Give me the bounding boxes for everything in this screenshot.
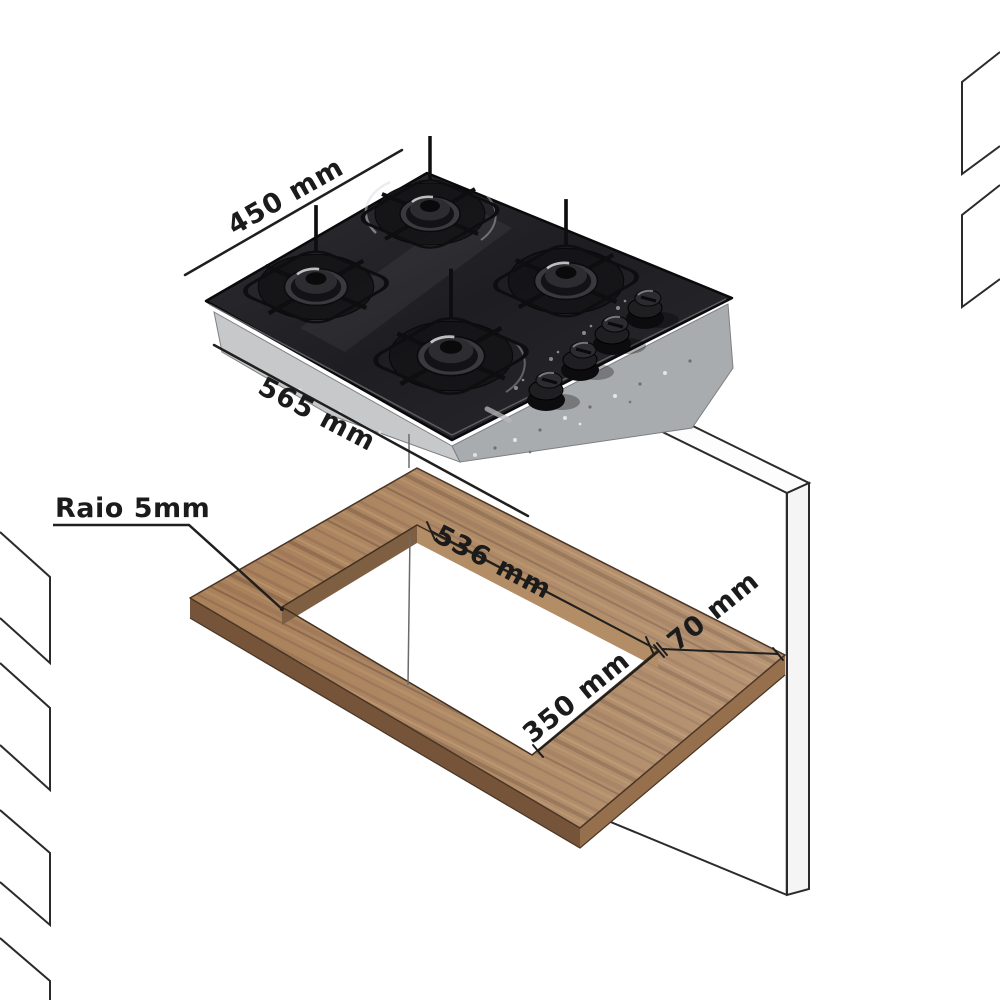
installation-diagram: 450 mm 565 mm 536 mm 350 mm 70 mm Raio 5… <box>0 0 1000 1000</box>
diagram-canvas: 450 mm 565 mm 536 mm 350 mm 70 mm Raio 5… <box>0 0 1000 1000</box>
side-wall-panel-end <box>787 483 809 895</box>
radius-callout-label: Raio 5mm <box>55 493 210 524</box>
